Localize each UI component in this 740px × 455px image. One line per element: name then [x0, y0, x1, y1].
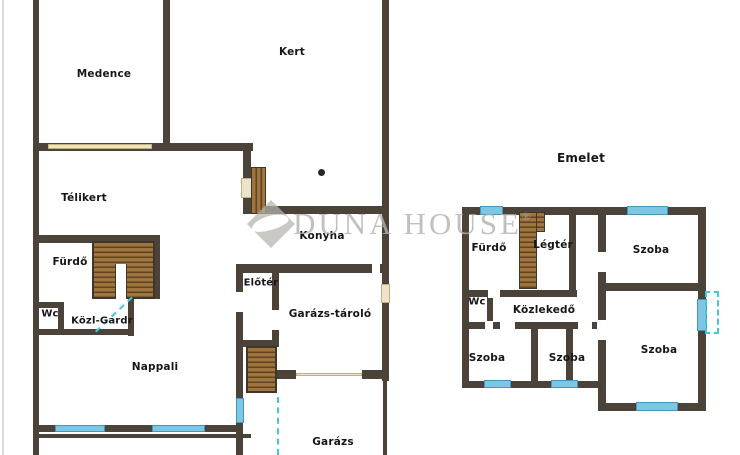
room-label-szoba-bottom-middle: Szoba	[549, 352, 586, 364]
floor-plan: Medence Kert Télikert Fürdő Wc Közl-Gard…	[0, 0, 740, 455]
window-marker	[152, 425, 205, 432]
staircase-main	[92, 241, 155, 299]
room-label-telikert: Télikert	[61, 192, 107, 204]
room-label-wc: Wc	[41, 309, 58, 320]
room-label-garazs: Garázs	[312, 436, 354, 448]
room-label-furdo: Fürdő	[52, 256, 87, 268]
garage-door-marker	[296, 373, 362, 376]
image-edge-line	[2, 0, 4, 455]
staircase-upper-landing	[536, 212, 545, 232]
watermark-logo	[246, 199, 296, 249]
room-label-legter: Légtér	[533, 239, 573, 251]
balcony-outline	[705, 291, 719, 334]
door-opening	[372, 263, 380, 274]
window-marker	[627, 206, 668, 215]
wall	[531, 329, 538, 388]
door-opening	[500, 321, 515, 330]
room-label-garazs-tarolo: Garázs-tároló	[289, 308, 372, 320]
staircase-gap	[115, 264, 127, 299]
room-label-furdo-upper: Fürdő	[471, 242, 506, 254]
terrace-edge-line	[33, 434, 251, 438]
watermark-text: DUNA HOUSE®	[293, 206, 530, 242]
room-label-szoba-bottom-left: Szoba	[469, 352, 506, 364]
column-dot	[318, 169, 325, 176]
window-marker	[236, 398, 244, 423]
wall	[382, 0, 389, 381]
wall	[606, 283, 706, 291]
wall	[163, 0, 170, 148]
room-label-wc-upper: Wc	[468, 297, 485, 308]
door-opening	[597, 252, 607, 272]
registered-mark-icon: ®	[522, 211, 530, 223]
wall	[236, 264, 389, 273]
section-line	[277, 397, 279, 455]
room-label-medence: Medence	[77, 68, 131, 80]
door-opening	[271, 310, 280, 330]
sliding-door-marker	[48, 144, 152, 149]
window-marker	[551, 380, 578, 388]
window-marker	[484, 380, 511, 388]
room-label-szoba-right: Szoba	[641, 344, 678, 356]
wall	[33, 0, 39, 455]
door-opening	[485, 321, 493, 330]
wall	[383, 381, 387, 455]
door-opening	[488, 289, 500, 298]
door-opening	[597, 320, 607, 340]
room-label-eloter: Előtér	[244, 278, 279, 289]
wall	[33, 329, 134, 335]
door-opening	[235, 292, 244, 312]
room-label-kert: Kert	[279, 46, 305, 58]
floor-title-emelet: Emelet	[557, 151, 605, 165]
window-marker	[55, 425, 105, 432]
window-marker	[636, 402, 678, 411]
watermark-brand: DUNA HOUSE	[293, 206, 522, 241]
room-label-szoba-top-right: Szoba	[633, 244, 670, 256]
room-label-nappali: Nappali	[132, 361, 179, 373]
staircase-to-garage	[246, 346, 277, 393]
room-label-kozlekedo: Közlekedő	[513, 304, 575, 316]
door-opening	[578, 321, 592, 330]
side-door-marker	[381, 284, 390, 303]
room-label-kozl-gardr: Közl-Gardr	[71, 316, 133, 327]
wall	[569, 215, 576, 292]
